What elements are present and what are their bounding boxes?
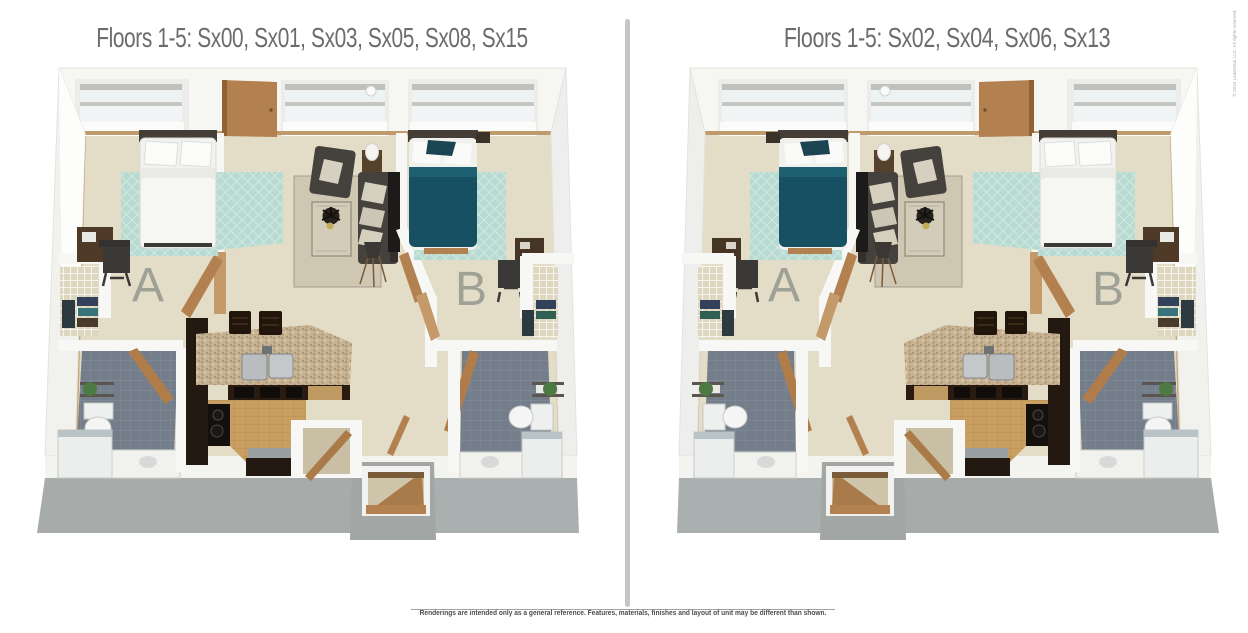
svg-text:A: A [132,259,164,312]
svg-text:A: A [768,259,800,312]
svg-text:B: B [455,263,487,316]
svg-text:© 2015 LeaseStar LLC. All righ: © 2015 LeaseStar LLC. All rights reserve… [1231,9,1237,96]
svg-text:B: B [1092,263,1124,316]
